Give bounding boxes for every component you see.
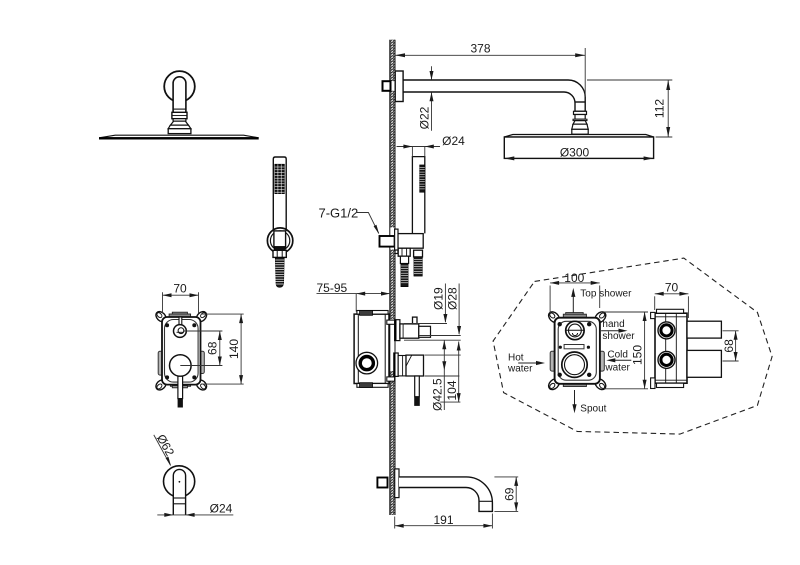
svg-text:7-G1/2: 7-G1/2 bbox=[319, 206, 359, 221]
svg-text:Ø24: Ø24 bbox=[442, 134, 465, 148]
svg-text:Ø24: Ø24 bbox=[210, 501, 233, 515]
svg-text:140: 140 bbox=[227, 339, 241, 359]
svg-text:68: 68 bbox=[206, 341, 220, 355]
svg-text:Top shower: Top shower bbox=[580, 289, 632, 300]
svg-text:Ø19: Ø19 bbox=[432, 287, 446, 310]
svg-text:Spout: Spout bbox=[580, 404, 606, 415]
svg-text:150: 150 bbox=[631, 345, 645, 365]
svg-text:104: 104 bbox=[445, 380, 459, 400]
svg-text:Ø42.5: Ø42.5 bbox=[430, 378, 444, 411]
svg-text:hand: hand bbox=[602, 319, 624, 330]
svg-text:Ø300: Ø300 bbox=[560, 145, 590, 159]
svg-text:water: water bbox=[604, 363, 630, 374]
svg-text:water: water bbox=[507, 364, 533, 375]
svg-text:112: 112 bbox=[653, 99, 667, 118]
svg-text:100: 100 bbox=[564, 271, 584, 285]
svg-text:Hot: Hot bbox=[508, 352, 524, 363]
svg-text:70: 70 bbox=[665, 280, 679, 294]
svg-text:378: 378 bbox=[470, 41, 490, 55]
svg-text:75-95: 75-95 bbox=[317, 281, 348, 295]
svg-text:Cold: Cold bbox=[607, 350, 628, 361]
svg-text:68: 68 bbox=[722, 339, 736, 353]
svg-text:70: 70 bbox=[173, 282, 187, 296]
svg-text:69: 69 bbox=[502, 487, 516, 501]
svg-text:191: 191 bbox=[433, 513, 453, 527]
svg-text:Ø28: Ø28 bbox=[445, 287, 459, 310]
svg-text:Ø22: Ø22 bbox=[417, 106, 431, 129]
